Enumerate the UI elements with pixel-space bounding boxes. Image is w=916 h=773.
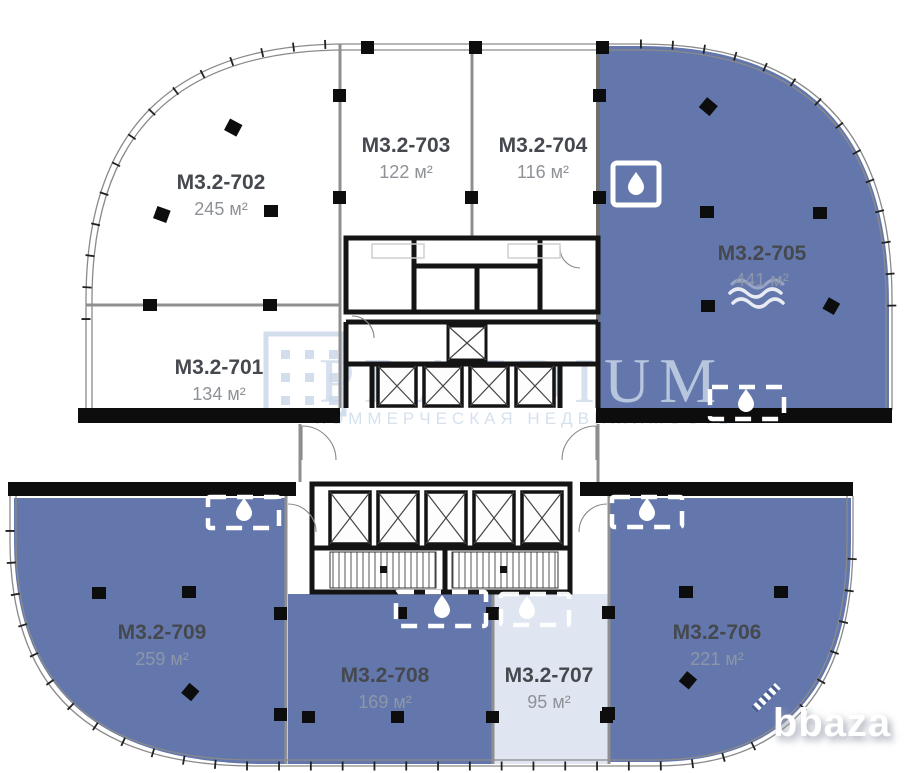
- unit-area-704: 116 м²: [517, 162, 569, 182]
- unit-area-705: 441 м²: [735, 270, 788, 290]
- unit-area-706: 221 м²: [690, 649, 743, 669]
- site-logo-text: bbaza: [773, 701, 891, 745]
- unit-area-701: 134 м²: [192, 384, 245, 404]
- unit-area-707: 95 м²: [527, 692, 570, 712]
- unit-area-703: 122 м²: [379, 162, 432, 182]
- unit-label-705: M3.2-705: [718, 242, 807, 265]
- ceiling-boxes: [372, 244, 560, 258]
- floor-plan-svg: PRAEDIUM КОММЕРЧЕСКАЯ НЕДВИЖИМОСТЬ: [0, 0, 916, 773]
- unit-label-702: M3.2-702: [177, 171, 266, 194]
- unit-area-702: 245 м²: [194, 199, 247, 219]
- unit-label-703: M3.2-703: [362, 134, 451, 157]
- unit-label-707: M3.2-707: [505, 664, 594, 687]
- unit-label-706: M3.2-706: [673, 621, 762, 644]
- unit-label-704: M3.2-704: [499, 134, 588, 157]
- floor-plan-image: PRAEDIUM КОММЕРЧЕСКАЯ НЕДВИЖИМОСТЬ: [0, 0, 916, 773]
- unit-label-709: M3.2-709: [118, 621, 207, 644]
- unit-label-701: M3.2-701: [175, 356, 264, 379]
- unit-area-708: 169 м²: [358, 692, 411, 712]
- site-logo: bbaza: [751, 683, 891, 745]
- unit-area-709: 259 м²: [135, 649, 188, 669]
- unit-label-708: M3.2-708: [341, 664, 430, 687]
